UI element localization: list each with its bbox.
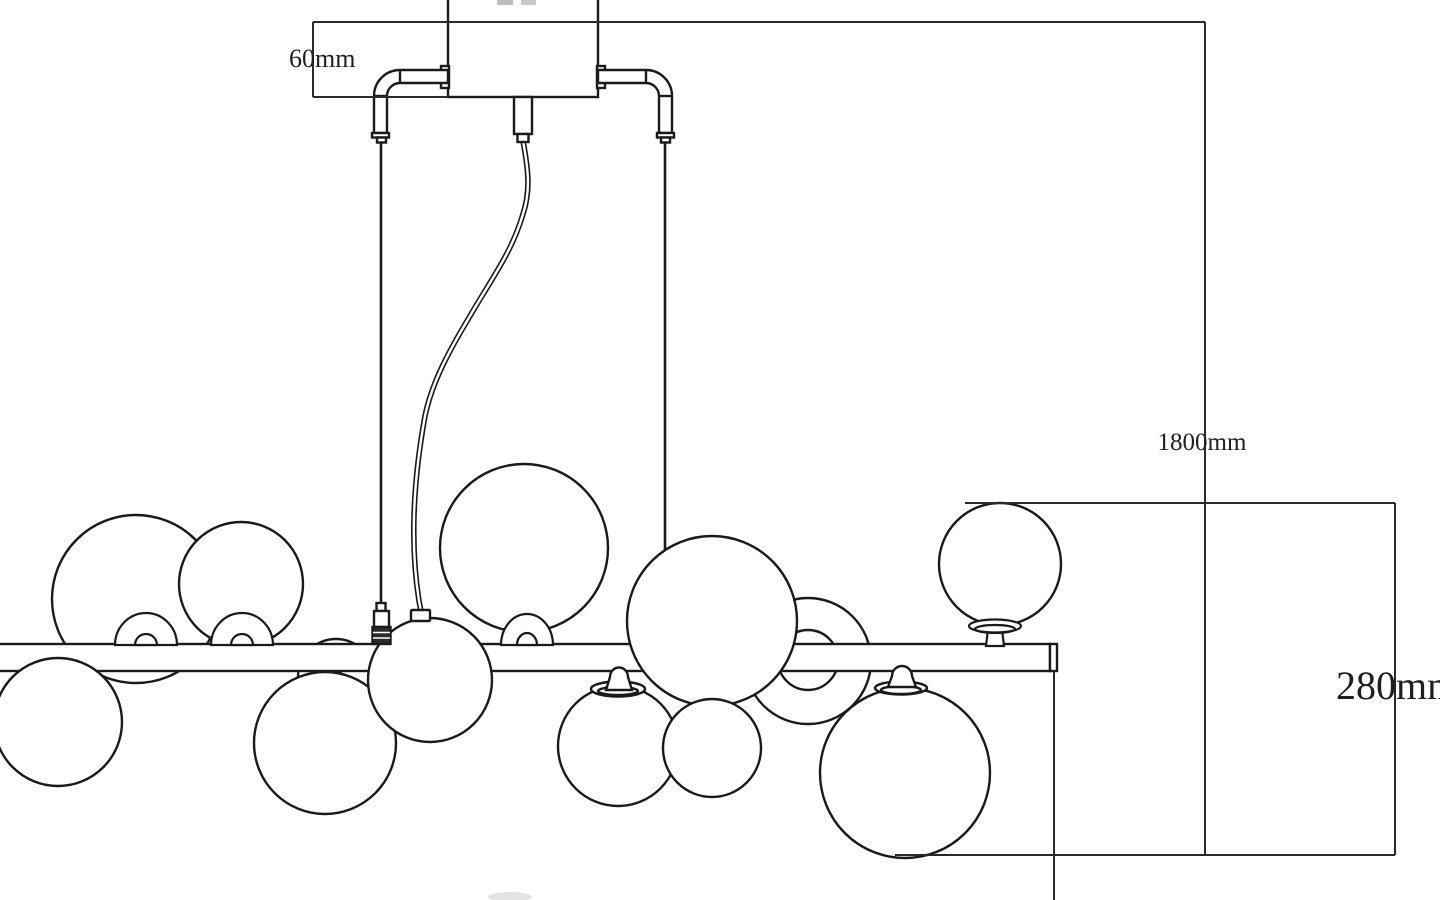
right-elbow-nub [661,138,670,143]
overall-drop-label: 1800mm [1158,429,1247,456]
glass-sphere-bottom-4 [820,688,990,858]
bar-body [0,644,1050,671]
canopy-cutoff-mark-2 [521,0,536,5]
left-elbow-nub [377,138,386,143]
glass-sphere-bottom-1 [0,658,122,786]
cropped-bottom-dimension-label [488,892,532,900]
glass-sphere-bottom-center [663,699,761,797]
glass-sphere-top-3 [440,464,608,632]
chandelier-dimension-drawing: 60mm 1800mm 280mm [0,0,1440,900]
fixture-height-label: 280mm [1336,663,1440,708]
glass-sphere-top-4 [939,503,1061,625]
left-elbow-arm [374,70,448,133]
bar-end-cap [1050,644,1057,671]
cord-connector-block [411,610,430,621]
right-elbow-arm [598,70,672,133]
technical-drawing-canvas: 60mm 1800mm 280mm [0,0,1440,900]
canopy-cutoff-mark-1 [497,0,513,5]
canopy-stem [514,97,532,134]
turnbuckle-body [374,611,389,627]
glass-sphere-bottom-3 [558,686,678,806]
dimension-labels: 60mm 1800mm 280mm [289,44,1440,708]
ceiling-canopy [448,0,598,97]
turnbuckle-threads [373,627,391,644]
turnbuckle-cap [377,603,386,611]
canopy-height-label: 60mm [289,44,355,73]
canopy-stem-tip [518,134,529,142]
glass-sphere-top-large [627,536,797,706]
